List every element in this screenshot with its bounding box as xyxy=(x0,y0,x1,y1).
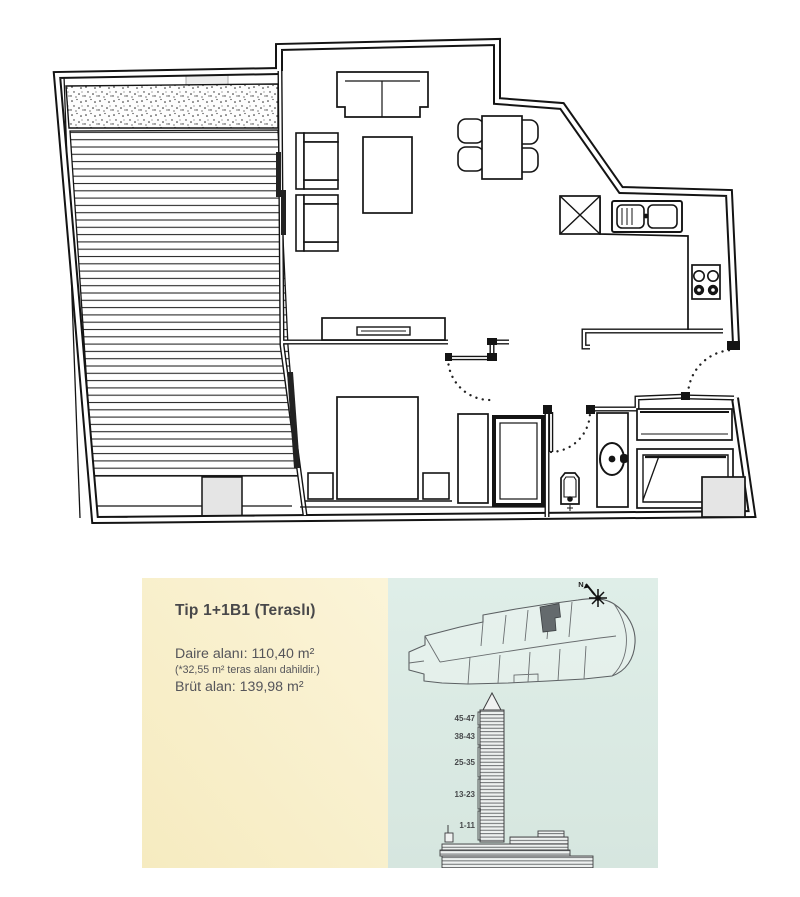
dining-table xyxy=(482,116,522,179)
key-plan xyxy=(409,599,635,684)
nightstand xyxy=(423,473,449,499)
door-jamb xyxy=(586,405,595,414)
living-terrace-window xyxy=(276,152,281,197)
nightstand xyxy=(308,473,333,499)
dining-set xyxy=(458,116,538,179)
faucet xyxy=(620,454,628,463)
floor-range-label: 1-11 xyxy=(459,821,475,830)
floor-range-label: 45-47 xyxy=(455,714,476,723)
kitchen xyxy=(560,196,720,330)
living-terrace-window-2 xyxy=(281,190,286,235)
floor-range-label: 25-35 xyxy=(455,758,476,767)
wardrobe xyxy=(458,414,488,503)
unit-type-title: Tip 1+1B1 (Teraslı) xyxy=(175,602,388,620)
entry-door-swing xyxy=(688,350,733,394)
kitchen-sink xyxy=(612,201,682,232)
bathroom xyxy=(561,409,745,517)
armchair xyxy=(296,195,338,251)
podium-block xyxy=(538,831,564,837)
bath-shelf xyxy=(637,409,732,440)
terrace-planting-strip xyxy=(66,84,278,128)
floor-range-label: 13-23 xyxy=(455,790,476,799)
podium-block xyxy=(510,837,568,844)
coffee-table xyxy=(363,137,412,213)
closet xyxy=(494,417,543,505)
door-jamb xyxy=(487,353,497,361)
terrace-note-line: (*32,55 m² teras alanı dahildir.) xyxy=(175,664,388,676)
bedroom-door-swing xyxy=(448,358,490,400)
podium-block xyxy=(442,856,593,868)
terrace-deck-slats xyxy=(70,130,299,476)
door-jamb xyxy=(487,338,497,345)
door-jamb xyxy=(445,353,452,361)
cooktop xyxy=(692,265,720,299)
dining-chair xyxy=(458,147,484,171)
toilet xyxy=(561,473,579,511)
tower-body xyxy=(480,710,504,842)
compass-label: N xyxy=(578,580,583,589)
bedroom xyxy=(300,397,545,507)
shaft-box xyxy=(560,196,600,234)
armchair xyxy=(296,133,338,189)
dining-chair xyxy=(458,119,484,143)
terrace-column xyxy=(202,477,242,519)
bathroom-shaft xyxy=(702,477,745,517)
door-jamb xyxy=(727,341,740,350)
bathroom-door-swing xyxy=(551,412,590,452)
low-building xyxy=(445,833,453,842)
living-room xyxy=(296,72,538,340)
site-key-graphic: N 45-47 38-43 25-35 13-23 1-11 xyxy=(388,578,658,868)
floor-range-label: 38-43 xyxy=(455,732,476,741)
site-key-panel: N 45-47 38-43 25-35 13-23 1-11 xyxy=(388,578,658,868)
page: { "page": { "background": "#ffffff" }, "… xyxy=(0,0,800,897)
podium-block xyxy=(440,850,570,856)
bed xyxy=(337,397,418,499)
unit-area-line: Daire alanı: 110,40 m² xyxy=(175,646,388,662)
unit-info-panel: Tip 1+1B1 (Teraslı) Daire alanı: 110,40 … xyxy=(142,578,388,868)
floor-plan xyxy=(0,0,800,555)
washbasin xyxy=(597,413,628,507)
gross-area-line: Brüt alan: 139,98 m² xyxy=(175,679,388,695)
podium-block xyxy=(442,844,568,850)
door-jamb xyxy=(543,405,552,414)
tower-crown xyxy=(483,693,501,710)
sofa xyxy=(337,72,428,117)
info-panels: Tip 1+1B1 (Teraslı) Daire alanı: 110,40 … xyxy=(142,578,658,868)
terrace xyxy=(64,73,299,519)
door-jamb xyxy=(681,392,690,400)
tv-console xyxy=(322,318,445,340)
tower-diagram: 45-47 38-43 25-35 13-23 1-11 xyxy=(440,693,593,868)
